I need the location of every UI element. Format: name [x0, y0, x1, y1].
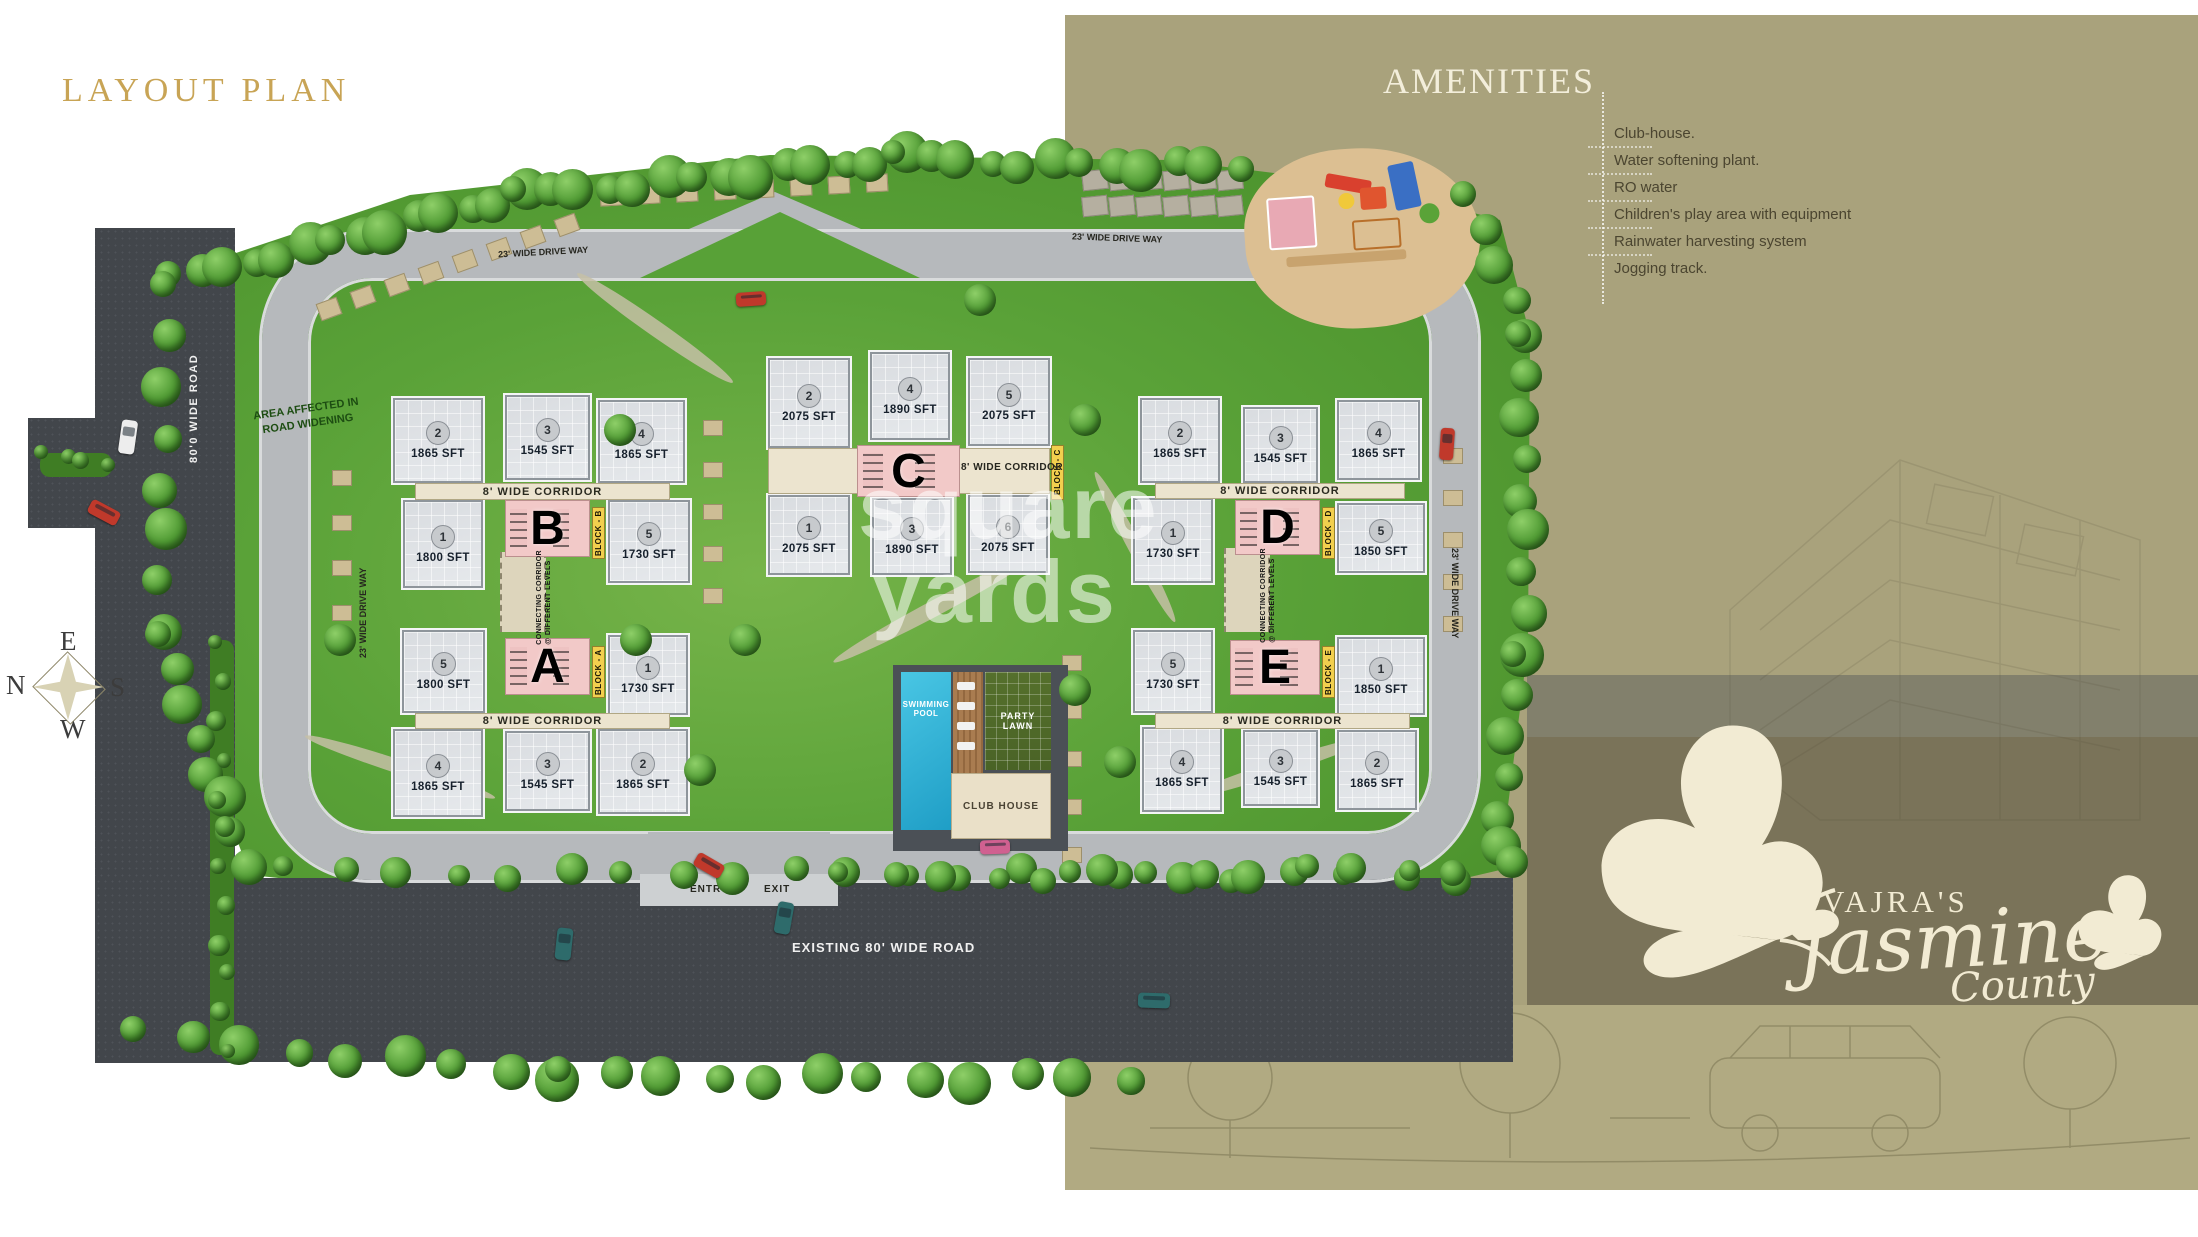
- unit-number: 3: [536, 752, 560, 776]
- club-house: CLUB HOUSE: [951, 773, 1051, 839]
- unit-area: 1865 SFT: [1350, 778, 1404, 790]
- tree: [1499, 398, 1538, 437]
- block-D-cluster: 2 1865 SFT 3 1545 SFT 4 1865 SFT 8' WIDE…: [1130, 395, 1427, 587]
- tree: [141, 367, 180, 406]
- watermark: square yards: [858, 466, 1159, 633]
- parking-stall: [1135, 195, 1163, 218]
- sand-path: [1286, 249, 1406, 267]
- amenities-divider: [1602, 92, 1604, 304]
- tree: [161, 653, 194, 686]
- amenity-item: Children's play area with equipment: [1614, 201, 1851, 228]
- tree: [746, 1065, 781, 1100]
- tree: [1069, 404, 1101, 436]
- connecting-label-line2: @ DIFFERENT LEVELS: [545, 550, 552, 645]
- block-core: D: [1235, 500, 1320, 555]
- tree: [1470, 214, 1502, 246]
- tree: [1486, 717, 1524, 755]
- paver: [332, 605, 352, 621]
- brand-subname: County: [1949, 958, 2096, 1012]
- tree: [436, 1049, 466, 1079]
- tree: [1059, 674, 1091, 706]
- block-letter: D: [1260, 500, 1295, 555]
- tree: [286, 1039, 314, 1067]
- unit-area: 1730 SFT: [1146, 679, 1200, 691]
- driveway-label-right: 23' WIDE DRIVE WAY: [1450, 548, 1460, 658]
- unit: 3 1545 SFT: [505, 731, 590, 811]
- tree: [177, 1021, 210, 1054]
- unit: 2 1865 SFT: [598, 729, 688, 814]
- tree: [328, 1044, 363, 1079]
- tree: [609, 861, 632, 884]
- unit: 3 1545 SFT: [1243, 730, 1318, 806]
- corridor-label: 8' WIDE CORRIDOR: [415, 713, 670, 729]
- unit-number: 1: [636, 656, 660, 680]
- tree: [1184, 146, 1222, 184]
- paver: [703, 588, 723, 604]
- brochure-band: [1527, 675, 2198, 737]
- unit-number: 5: [1161, 652, 1185, 676]
- unit-number: 1: [1369, 657, 1393, 681]
- tree: [784, 856, 809, 881]
- tree: [324, 624, 356, 656]
- tree: [1117, 1067, 1144, 1094]
- swimming-pool: SWIMMING POOL: [901, 672, 951, 830]
- lounger: [957, 682, 975, 690]
- compass-rose: E N S W: [8, 632, 128, 744]
- tree: [1119, 149, 1162, 192]
- unit: 1 1850 SFT: [1337, 637, 1425, 715]
- unit-number: 5: [1369, 519, 1393, 543]
- play-structure: [1360, 186, 1387, 210]
- unit: 5 1730 SFT: [1133, 630, 1213, 713]
- tree: [728, 155, 773, 200]
- tree: [604, 414, 636, 446]
- tree: [1501, 679, 1533, 711]
- road-median-hedge: [210, 640, 234, 1055]
- block-tag: BLOCK - E: [1322, 646, 1335, 698]
- lounger: [957, 702, 975, 710]
- unit: 5 1800 SFT: [402, 630, 485, 713]
- tree: [1513, 445, 1541, 473]
- unit: 3 1545 SFT: [505, 395, 590, 480]
- unit-area: 2075 SFT: [982, 410, 1036, 422]
- tree: [380, 857, 410, 887]
- block-tag: BLOCK - A: [592, 646, 605, 698]
- paver: [332, 560, 352, 576]
- connecting-label-line2: @ DIFFERENT LEVELS: [1269, 548, 1276, 643]
- tree: [881, 140, 905, 164]
- watermark-line2: yards: [872, 550, 1159, 634]
- tree: [1190, 860, 1218, 888]
- connecting-label-line1: CONNECTING CORRIDOR: [536, 550, 543, 645]
- unit-area: 1800 SFT: [416, 552, 470, 564]
- tree: [142, 473, 177, 508]
- tree: [1495, 763, 1523, 791]
- unit: 4 1890 SFT: [870, 352, 950, 440]
- tree: [210, 1002, 230, 1022]
- parking-stall: [1081, 195, 1109, 218]
- unit-number: 5: [432, 652, 456, 676]
- compass-west: W: [60, 714, 85, 745]
- tree: [1507, 509, 1548, 550]
- tree: [385, 1035, 426, 1076]
- unit-area: 1865 SFT: [616, 779, 670, 791]
- unit: 5 1850 SFT: [1337, 503, 1425, 573]
- connecting-corridor-label: CONNECTING CORRIDOR @ DIFFERENT LEVELS: [1260, 548, 1276, 643]
- tree: [418, 193, 458, 233]
- tree: [1510, 359, 1543, 392]
- unit-number: 1: [1161, 521, 1185, 545]
- unit-area: 1545 SFT: [1254, 776, 1308, 788]
- compass-south: S: [110, 672, 125, 703]
- unit: 5 2075 SFT: [968, 358, 1050, 446]
- tree: [556, 853, 588, 885]
- unit-number: 2: [1365, 751, 1389, 775]
- tree: [851, 1062, 881, 1092]
- pool-deck: [953, 672, 983, 776]
- paver: [332, 515, 352, 531]
- tree: [620, 624, 652, 656]
- compass-east: E: [60, 626, 77, 657]
- unit-area: 1865 SFT: [1153, 448, 1207, 460]
- tree: [1500, 641, 1526, 667]
- unit-area: 1865 SFT: [615, 449, 669, 461]
- block-A-cluster: 5 1800 SFT A BLOCK - A 1 1730 SFT 8' WID…: [390, 628, 695, 820]
- tree: [1496, 846, 1527, 877]
- tree: [802, 1053, 843, 1094]
- tree: [1503, 287, 1531, 315]
- tree: [601, 1056, 634, 1089]
- unit-number: 3: [1269, 426, 1293, 450]
- amenities-heading: AMENITIES: [1280, 60, 1595, 102]
- block-tag: BLOCK - B: [592, 507, 605, 559]
- unit-number: 3: [536, 418, 560, 442]
- tree: [936, 140, 975, 179]
- tree: [614, 172, 650, 208]
- unit: 4 1865 SFT: [1337, 400, 1420, 480]
- unit-area: 1850 SFT: [1354, 684, 1408, 696]
- tree: [145, 508, 186, 549]
- tree: [964, 284, 996, 316]
- tree: [684, 754, 716, 786]
- unit-area: 1865 SFT: [411, 781, 465, 793]
- parking-stall: [1162, 195, 1190, 218]
- unit-area: 2075 SFT: [782, 543, 836, 555]
- block-core: B: [505, 500, 590, 557]
- unit-number: 2: [631, 752, 655, 776]
- tree: [1505, 321, 1531, 347]
- paver: [332, 470, 352, 486]
- tree: [162, 685, 201, 724]
- tree: [208, 935, 230, 957]
- tree: [1231, 860, 1264, 893]
- tree: [153, 319, 186, 352]
- car: [554, 927, 573, 960]
- amenity-item: Jogging track.: [1614, 255, 1851, 282]
- unit-area: 1800 SFT: [417, 679, 471, 691]
- play-tower: [1387, 161, 1422, 211]
- block-letter: E: [1259, 640, 1291, 695]
- amenity-item: Club-house.: [1614, 120, 1851, 147]
- layout-plan-page: LAYOUT PLAN AMENITIES Club-house. Water …: [0, 0, 2198, 1237]
- corridor-label: 8' WIDE CORRIDOR: [1155, 713, 1410, 729]
- car: [980, 839, 1010, 854]
- tree: [1506, 557, 1536, 587]
- tree: [948, 1062, 991, 1105]
- connecting-label-line1: CONNECTING CORRIDOR: [1260, 548, 1267, 643]
- unit: 2 1865 SFT: [393, 398, 483, 483]
- tree: [273, 856, 293, 876]
- block-letter: A: [530, 639, 565, 694]
- tree: [1450, 181, 1476, 207]
- block-tag: BLOCK - D: [1322, 507, 1335, 559]
- unit: 4 1865 SFT: [1142, 727, 1222, 812]
- tree: [1475, 246, 1513, 284]
- unit-area: 1865 SFT: [1352, 448, 1406, 460]
- unit: 2 2075 SFT: [768, 358, 850, 448]
- amenity-item: RO water: [1614, 174, 1851, 201]
- paver: [703, 546, 723, 562]
- tree: [1059, 860, 1082, 883]
- car: [1138, 992, 1171, 1008]
- tree: [1065, 148, 1093, 176]
- unit-number: 2: [797, 384, 821, 408]
- parking-stall: [1108, 195, 1136, 218]
- tree: [448, 865, 470, 887]
- tree: [1000, 151, 1034, 185]
- corridor-label: 8' WIDE CORRIDOR: [415, 483, 670, 500]
- tree: [34, 445, 48, 459]
- clubhouse-zone: SWIMMING POOL PARTY LAWN CLUB HOUSE: [893, 665, 1068, 851]
- unit-area: 1545 SFT: [521, 779, 575, 791]
- unit-area: 1865 SFT: [411, 448, 465, 460]
- amenity-item: Rainwater harvesting system: [1614, 228, 1851, 255]
- unit: 1 2075 SFT: [768, 495, 850, 575]
- unit-number: 5: [997, 383, 1021, 407]
- block-core: E: [1230, 640, 1320, 695]
- unit: 5 1730 SFT: [608, 500, 690, 583]
- lounger: [957, 722, 975, 730]
- tree: [206, 711, 226, 731]
- left-road-label: 80'0 WIDE ROAD: [188, 328, 200, 463]
- unit: 3 1545 SFT: [1243, 407, 1318, 483]
- parking-stall: [1189, 195, 1217, 218]
- unit-number: 4: [1367, 421, 1391, 445]
- unit-number: 2: [1168, 421, 1192, 445]
- unit-area: 1730 SFT: [621, 683, 675, 695]
- tree: [1053, 1058, 1092, 1097]
- pool-label-line2: POOL: [914, 709, 939, 718]
- page-title: LAYOUT PLAN: [62, 72, 350, 110]
- tree: [334, 857, 359, 882]
- party-lawn: PARTY LAWN: [985, 672, 1051, 770]
- tree: [362, 210, 407, 255]
- tree: [208, 791, 226, 809]
- unit: 4 1865 SFT: [393, 729, 483, 817]
- paver: [703, 420, 723, 436]
- tree: [1336, 853, 1366, 883]
- unit-area: 2075 SFT: [782, 411, 836, 423]
- unit-number: 4: [898, 377, 922, 401]
- party-lawn-label-line1: PARTY: [1001, 711, 1036, 721]
- tree: [1440, 860, 1466, 886]
- tree: [706, 1065, 734, 1093]
- tree: [154, 425, 182, 453]
- paver: [1443, 532, 1463, 548]
- parking-stall: [1216, 195, 1244, 218]
- tree: [1134, 861, 1157, 884]
- tree: [145, 621, 171, 647]
- party-lawn-label-line2: LAWN: [1003, 721, 1034, 731]
- club-house-label: CLUB HOUSE: [963, 801, 1039, 812]
- play-pavilion: [1266, 195, 1318, 250]
- unit-number: 1: [431, 525, 455, 549]
- unit-area: 1865 SFT: [1155, 777, 1209, 789]
- lounger: [957, 742, 975, 750]
- tree: [552, 169, 593, 210]
- tree: [1104, 746, 1136, 778]
- unit-number: 4: [426, 754, 450, 778]
- compass-north: N: [6, 670, 26, 701]
- monkey-bars: [1352, 217, 1402, 250]
- block-core: A: [505, 638, 590, 695]
- tree: [493, 1054, 530, 1091]
- tree: [884, 862, 909, 887]
- tree: [150, 271, 176, 297]
- tree: [925, 861, 955, 891]
- unit-number: 1: [797, 516, 821, 540]
- tree: [1228, 156, 1253, 181]
- block-E-cluster: 5 1730 SFT E BLOCK - E 1 1850 SFT 8' WID…: [1130, 628, 1427, 815]
- block-letter: B: [530, 501, 565, 556]
- tree: [1086, 854, 1118, 886]
- tree: [1012, 1058, 1044, 1090]
- tree: [1399, 860, 1420, 881]
- existing-road-label: EXISTING 80' WIDE ROAD: [792, 940, 975, 955]
- connecting-corridor-label: CONNECTING CORRIDOR @ DIFFERENT LEVELS: [536, 550, 552, 645]
- pool-label-line1: SWIMMING: [903, 700, 950, 709]
- unit-number: 2: [426, 421, 450, 445]
- paver: [1443, 490, 1463, 506]
- unit-number: 3: [1269, 749, 1293, 773]
- paver: [703, 462, 723, 478]
- tree: [545, 1056, 571, 1082]
- tree: [907, 1062, 944, 1099]
- tree: [729, 624, 761, 656]
- paver: [828, 175, 851, 194]
- tree: [828, 862, 848, 882]
- play-roundabout: [1338, 192, 1355, 209]
- unit-area: 1545 SFT: [1254, 453, 1308, 465]
- tree: [790, 145, 830, 185]
- exit-label: EXIT: [764, 884, 790, 895]
- tree: [641, 1056, 680, 1095]
- tree: [500, 176, 526, 202]
- tree: [210, 858, 226, 874]
- paver: [703, 504, 723, 520]
- amenities-list: Club-house. Water softening plant. RO wa…: [1614, 120, 1851, 282]
- tree: [1511, 595, 1548, 632]
- amenity-item: Water softening plant.: [1614, 147, 1851, 174]
- car: [1439, 428, 1455, 461]
- unit-area: 1730 SFT: [622, 549, 676, 561]
- play-bush: [1419, 203, 1440, 224]
- car: [736, 291, 767, 307]
- unit-area: 1545 SFT: [521, 445, 575, 457]
- tree: [208, 635, 222, 649]
- watermark-line1: square: [858, 466, 1159, 550]
- unit-area: 1890 SFT: [883, 404, 937, 416]
- unit-number: 5: [637, 522, 661, 546]
- unit-area: 1850 SFT: [1354, 546, 1408, 558]
- unit-number: 4: [1170, 750, 1194, 774]
- corridor-label: 8' WIDE CORRIDOR: [1155, 483, 1405, 499]
- driveway-label-left: 23' WIDE DRIVE WAY: [358, 548, 368, 658]
- tree: [676, 162, 706, 192]
- unit: 1 1800 SFT: [403, 500, 483, 588]
- unit: 2 1865 SFT: [1337, 730, 1417, 810]
- tree: [120, 1016, 146, 1042]
